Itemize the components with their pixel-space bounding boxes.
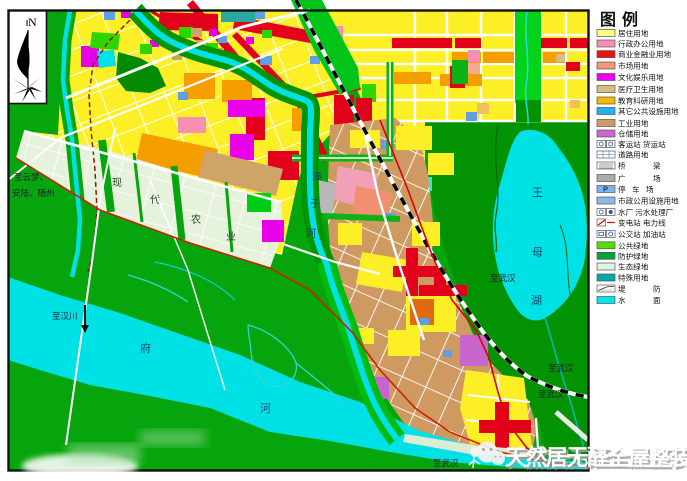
- svg-text:公共绿地: 公共绿地: [618, 240, 649, 250]
- svg-text:工业用地: 工业用地: [618, 118, 649, 128]
- svg-text:仓储用地: 仓储用地: [618, 129, 649, 139]
- svg-text:河: 河: [306, 228, 316, 240]
- svg-text:业: 业: [226, 231, 236, 243]
- svg-text:梁: 梁: [653, 162, 661, 171]
- svg-text:图例: 图例: [600, 10, 644, 29]
- svg-text:防: 防: [653, 284, 661, 294]
- svg-text:防护绿地: 防护绿地: [618, 251, 649, 261]
- svg-text:医疗卫生用地: 医疗卫生用地: [618, 84, 664, 94]
- svg-text:场: 场: [653, 174, 661, 183]
- svg-text:变电站 电力线: 变电站 电力线: [618, 218, 666, 228]
- svg-text:安陆、随州: 安陆、随州: [12, 188, 55, 198]
- svg-text:溱: 溱: [312, 170, 322, 183]
- svg-text:N: N: [28, 15, 37, 29]
- svg-text:广: 广: [618, 173, 626, 183]
- svg-text:母: 母: [532, 246, 543, 259]
- svg-text:居住用地: 居住用地: [618, 28, 649, 38]
- svg-text:水厂 污水处理厂: 水厂 污水处理厂: [618, 207, 674, 217]
- svg-text:教育科研用地: 教育科研用地: [618, 96, 664, 106]
- svg-text:农: 农: [191, 213, 201, 226]
- svg-text:至汉川: 至汉川: [52, 311, 78, 321]
- svg-text:公交站 加油站: 公交站 加油站: [618, 229, 666, 239]
- svg-text:河: 河: [260, 402, 271, 415]
- svg-text:面: 面: [653, 296, 661, 305]
- svg-text:文化娱乐用地: 文化娱乐用地: [618, 72, 664, 82]
- svg-text:水: 水: [618, 295, 626, 305]
- svg-text:湖: 湖: [531, 294, 542, 307]
- svg-text:桥: 桥: [618, 161, 626, 171]
- svg-text:生态绿地: 生态绿地: [618, 262, 649, 272]
- svg-text:客运站 货运站: 客运站 货运站: [618, 139, 666, 149]
- svg-text:特殊用地: 特殊用地: [618, 273, 649, 283]
- svg-text:市政公用设施用地: 市政公用设施用地: [618, 196, 679, 206]
- svg-text:行政办公用地: 行政办公用地: [618, 39, 664, 49]
- svg-text:至武汉: 至武汉: [538, 389, 564, 399]
- svg-text:王: 王: [532, 187, 543, 199]
- svg-text:至云梦、: 至云梦、: [14, 172, 48, 182]
- svg-text:至武汉: 至武汉: [433, 458, 459, 468]
- svg-text:P: P: [603, 185, 608, 194]
- svg-text:至武汉: 至武汉: [548, 363, 574, 373]
- svg-text:其它公共设施用地: 其它公共设施用地: [618, 106, 679, 116]
- svg-text:堤: 堤: [618, 284, 626, 294]
- svg-text:车: 车: [632, 184, 640, 194]
- svg-text:至武汉: 至武汉: [490, 273, 516, 283]
- svg-text:子: 子: [310, 198, 320, 210]
- svg-text:停: 停: [618, 184, 626, 194]
- svg-text:商业金融业用地: 商业金融业用地: [618, 49, 672, 59]
- svg-text:道路用地: 道路用地: [618, 150, 649, 160]
- svg-text:天然居无醛全屋整装: 天然居无醛全屋整装: [505, 445, 687, 470]
- svg-text:现: 现: [112, 177, 122, 189]
- svg-text:市场用地: 市场用地: [618, 61, 649, 71]
- svg-text:场: 场: [646, 185, 654, 194]
- svg-text:府: 府: [140, 341, 151, 355]
